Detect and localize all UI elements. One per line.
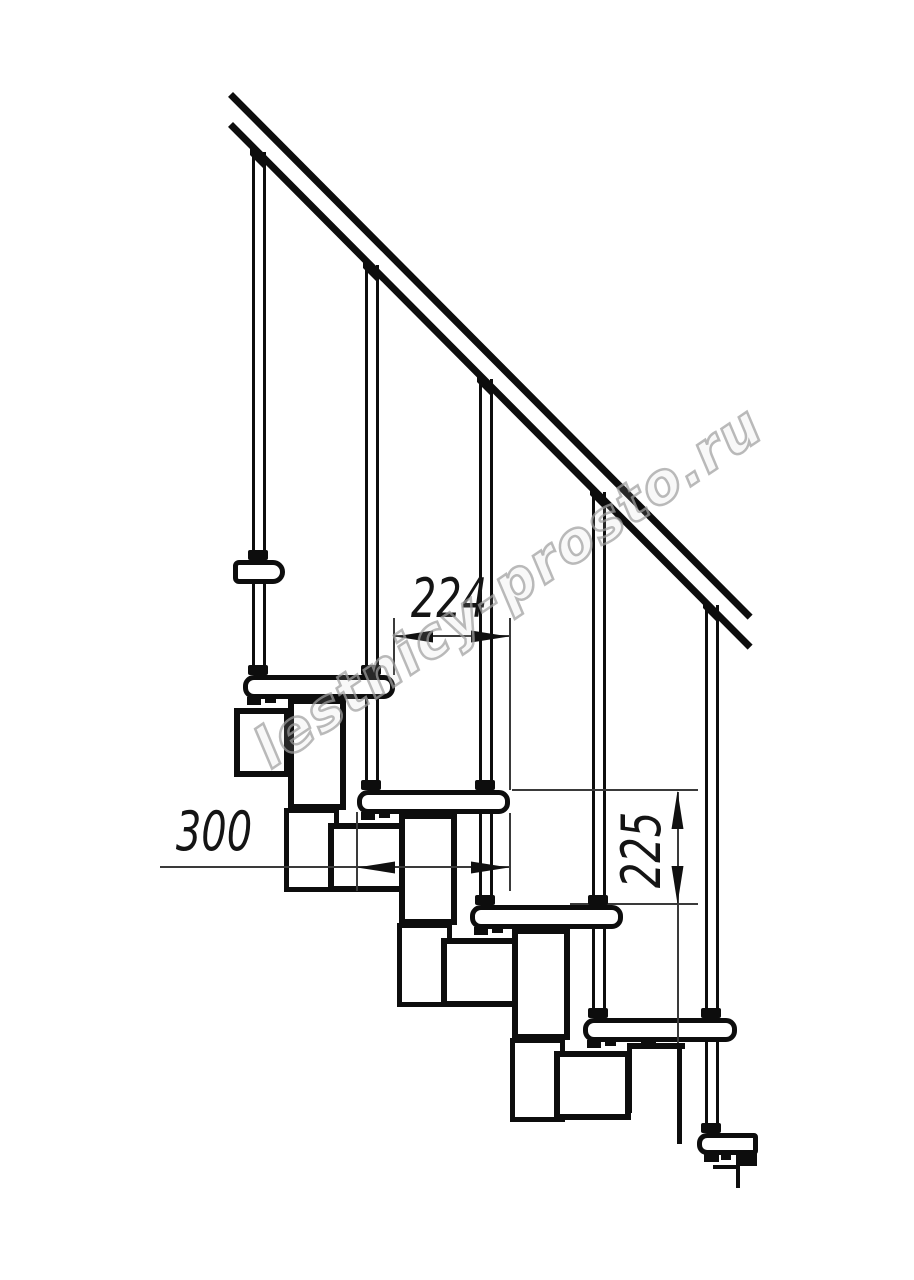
baluster-collar xyxy=(248,550,268,560)
tread-foot xyxy=(587,1040,601,1048)
module-column-4-left xyxy=(627,1049,632,1113)
baluster-collar xyxy=(701,1008,721,1018)
tread-foot xyxy=(379,812,390,818)
ext-line-right-lower xyxy=(509,813,511,891)
tread-4 xyxy=(583,1018,737,1042)
baluster-1 xyxy=(252,152,266,675)
module-column-4-right xyxy=(677,1049,682,1144)
tread-foot xyxy=(265,697,276,703)
module-column-2 xyxy=(399,813,457,925)
module-box-3 xyxy=(441,938,518,1007)
tread-foot xyxy=(704,1153,719,1162)
baluster-collar xyxy=(475,895,495,905)
ext-line-225-tail xyxy=(677,905,679,1045)
module-column-3 xyxy=(512,928,570,1040)
tread-0-partial xyxy=(233,560,285,584)
baluster-collar xyxy=(588,895,608,905)
staircase-drawing: 224 300 225 lestnicy-prosto.ru xyxy=(0,0,914,1280)
tread-foot xyxy=(528,927,543,934)
dim-line-300 xyxy=(160,866,509,868)
dim-label-225: 225 xyxy=(614,806,668,895)
baluster-5 xyxy=(705,605,719,1133)
tread-foot xyxy=(415,812,430,819)
break-line-vertical xyxy=(736,1165,740,1188)
tread-foot xyxy=(361,812,375,820)
tread-3 xyxy=(470,905,623,929)
baluster-collar xyxy=(588,1008,608,1018)
baluster-collar xyxy=(701,1123,721,1133)
module-box-4 xyxy=(554,1051,631,1120)
tread-foot xyxy=(492,927,503,933)
tread-foot xyxy=(247,697,261,705)
baluster-4 xyxy=(592,492,606,1018)
baluster-collar xyxy=(361,780,381,790)
baluster-collar xyxy=(475,780,495,790)
tread-foot xyxy=(605,1040,616,1046)
tread-foot xyxy=(721,1153,731,1160)
tread-foot xyxy=(474,927,488,935)
tread-2 xyxy=(357,790,510,814)
ext-line-300-left xyxy=(356,812,358,891)
arrow-225-down xyxy=(671,866,684,904)
dim-label-300: 300 xyxy=(170,808,259,854)
baluster-collar xyxy=(248,665,268,675)
ext-line-right-upper xyxy=(509,618,511,790)
arrow-225-up xyxy=(671,791,684,829)
module-box-2 xyxy=(328,823,405,892)
ext-line-225-top xyxy=(512,789,698,791)
tread-5-partial xyxy=(697,1133,758,1155)
